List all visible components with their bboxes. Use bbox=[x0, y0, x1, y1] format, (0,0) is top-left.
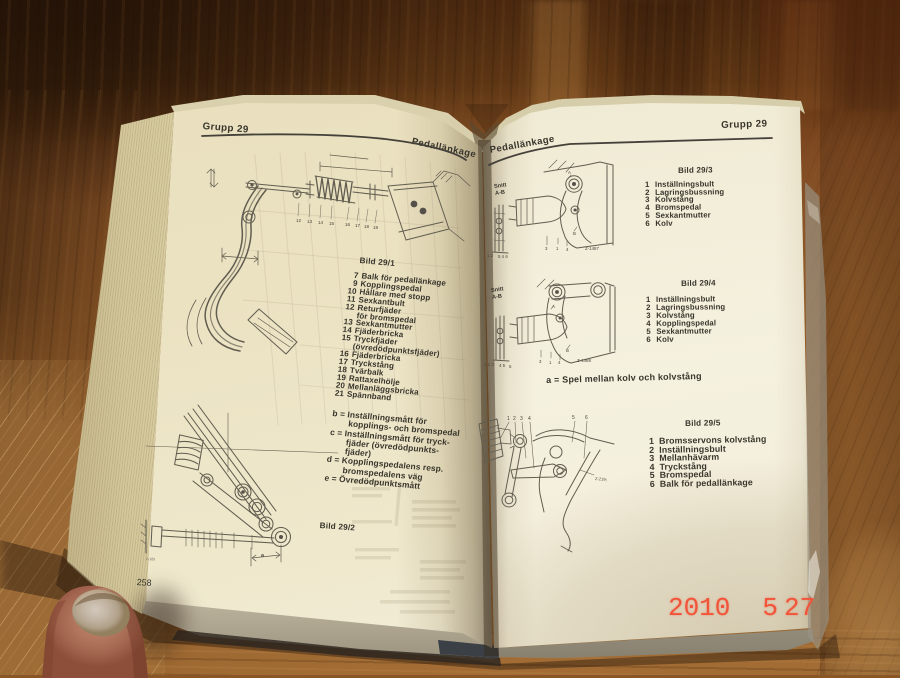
svg-text:1: 1 bbox=[556, 246, 559, 251]
svg-text:Z-1488: Z-1488 bbox=[577, 358, 591, 363]
svg-text:Z-1487: Z-1487 bbox=[585, 246, 599, 251]
svg-text:1 2 3: 1 2 3 bbox=[484, 362, 494, 367]
svg-text:1: 1 bbox=[549, 360, 552, 365]
svg-text:B: B bbox=[566, 348, 569, 353]
svg-text:A: A bbox=[568, 170, 571, 175]
svg-text:5 4 6: 5 4 6 bbox=[498, 254, 508, 259]
svg-text:3: 3 bbox=[545, 246, 548, 251]
svg-text:A: A bbox=[552, 304, 555, 309]
svg-text:4 5: 4 5 bbox=[499, 363, 506, 368]
svg-text:1 2: 1 2 bbox=[487, 253, 494, 258]
svg-text:A-B: A-B bbox=[495, 190, 506, 197]
svg-text:Snitt: Snitt bbox=[494, 182, 507, 190]
svg-text:6: 6 bbox=[509, 364, 512, 369]
svg-text:3: 3 bbox=[539, 359, 542, 364]
svg-text:Snitt: Snitt bbox=[491, 286, 504, 294]
svg-text:4: 4 bbox=[558, 360, 561, 365]
svg-text:B: B bbox=[573, 231, 576, 236]
svg-text:A-B: A-B bbox=[492, 294, 503, 301]
svg-text:4: 4 bbox=[566, 247, 569, 252]
